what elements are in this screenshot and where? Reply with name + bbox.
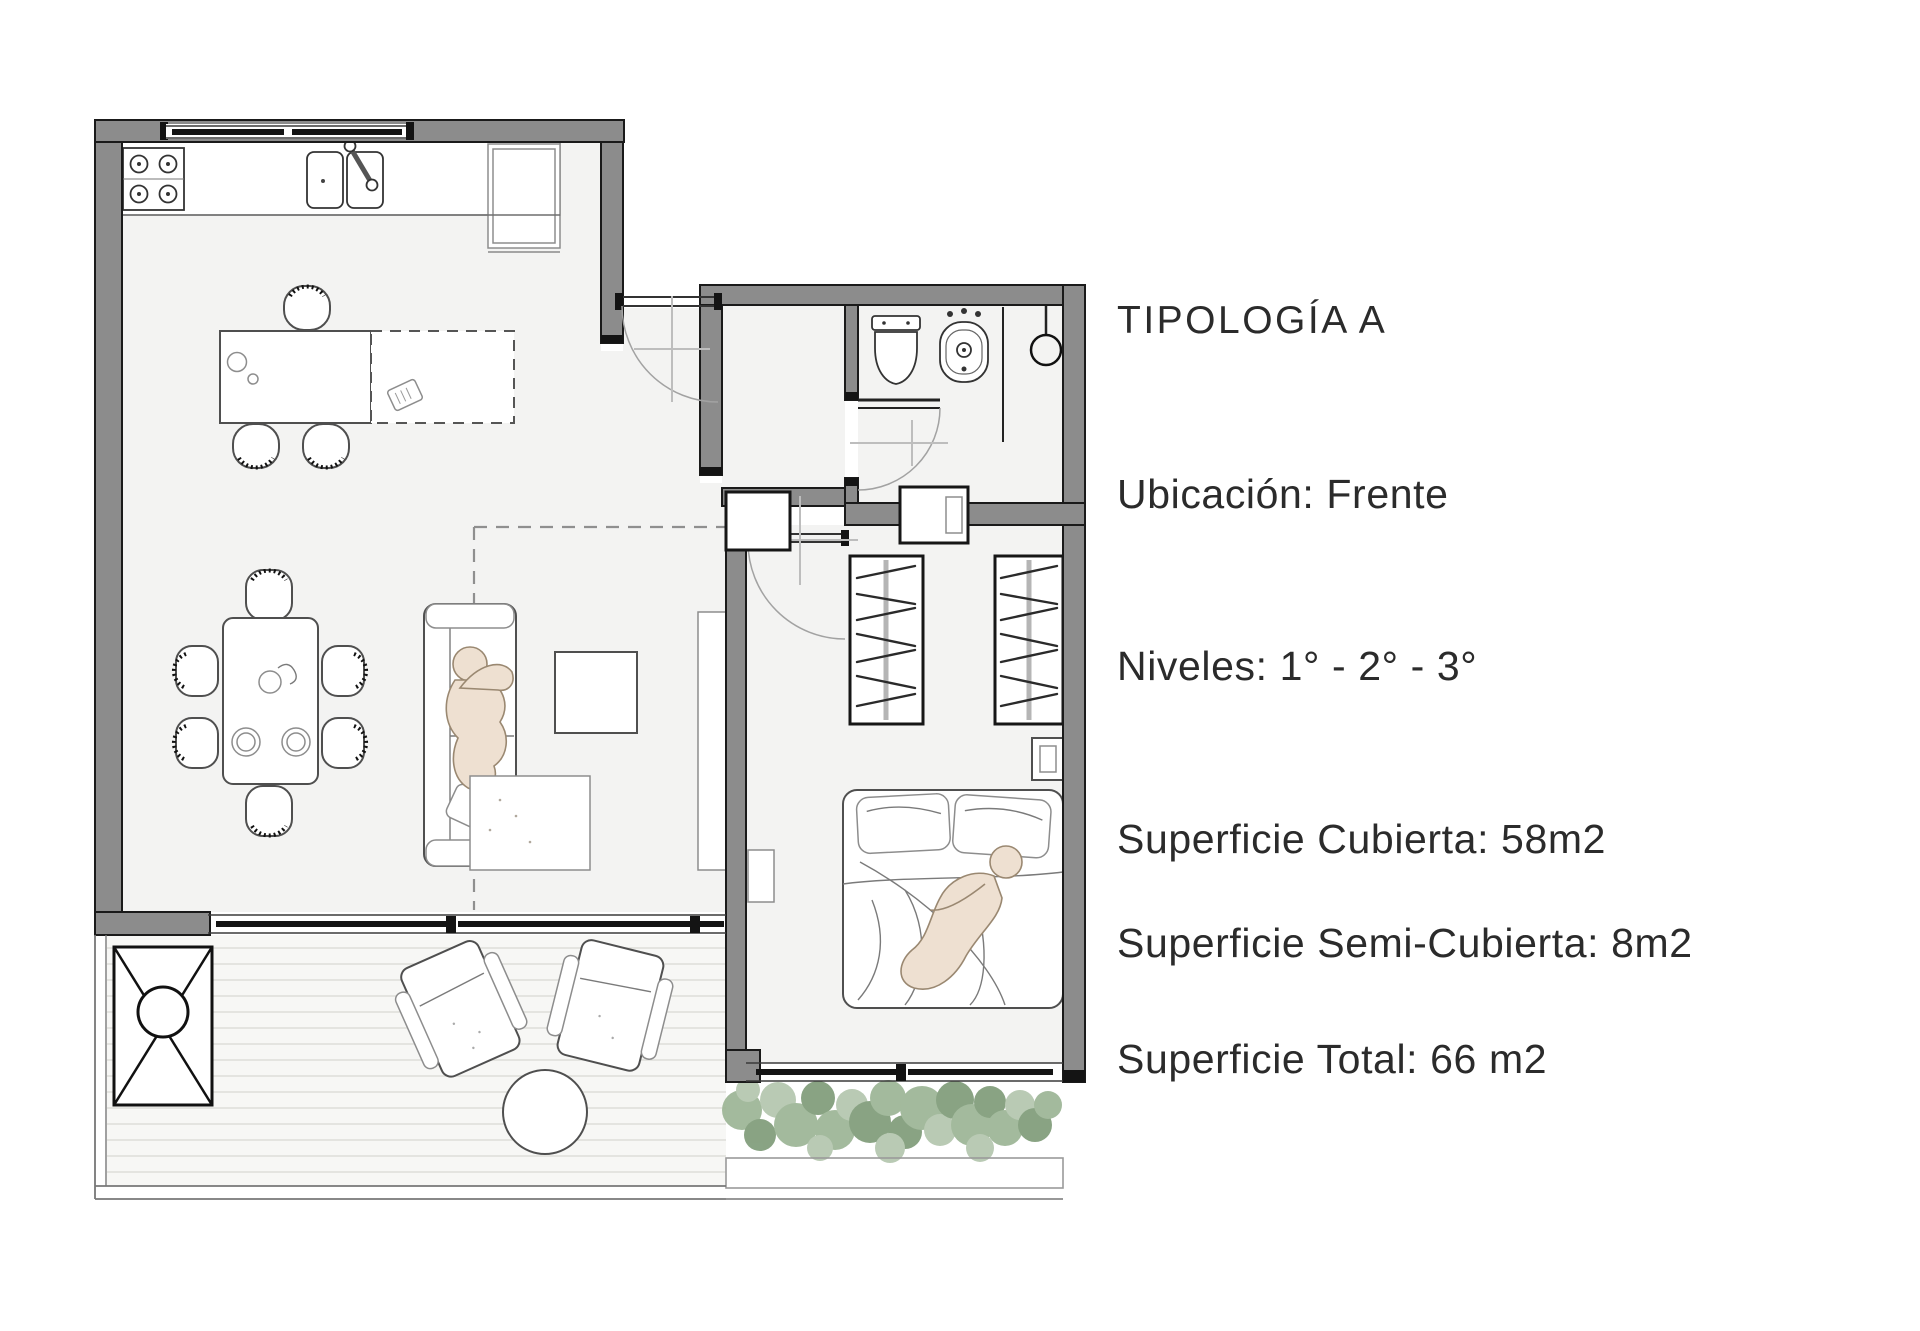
typology-title: TIPOLOGÍA A (1117, 299, 1387, 343)
kitchen-island (220, 331, 514, 423)
coffee-table (555, 652, 637, 733)
planter-greenery (722, 1078, 1062, 1163)
nightstand-inner (1040, 746, 1056, 772)
tv-unit (698, 612, 728, 870)
area-semi-covered-line: Superficie Semi-Cubierta: 8m2 (1117, 920, 1693, 967)
kitchen-stove (123, 148, 184, 210)
levels-line: Niveles: 1° - 2° - 3° (1117, 643, 1477, 690)
service-box (114, 947, 212, 1105)
fridge (488, 144, 560, 252)
area-total-line: Superficie Total: 66 m2 (1117, 1036, 1547, 1083)
wardrobe-left (850, 556, 923, 724)
bedroom-shelf (748, 850, 774, 902)
floor-plan-page: TIPOLOGÍA A Ubicación: Frente Niveles: 1… (0, 0, 1920, 1331)
planter-box (726, 1158, 1063, 1199)
washer (726, 492, 790, 550)
location-line: Ubicación: Frente (1117, 471, 1449, 518)
vanity (900, 487, 968, 543)
ottoman (470, 776, 590, 870)
area-covered-line: Superficie Cubierta: 58m2 (1117, 816, 1606, 863)
dining-table (223, 618, 318, 784)
balcony-table (503, 1070, 587, 1154)
floor-plan (0, 0, 1160, 1331)
wardrobe-right (995, 556, 1063, 724)
